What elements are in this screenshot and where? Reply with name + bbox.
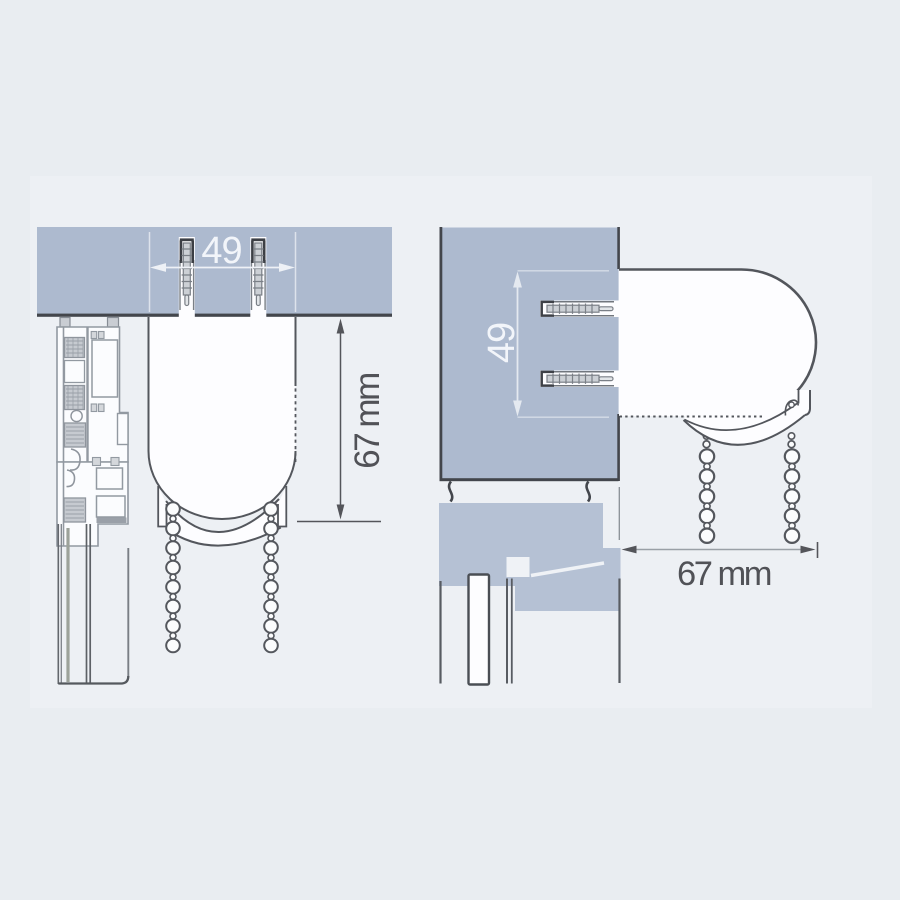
- svg-text:67 mm: 67 mm: [677, 555, 771, 593]
- svg-text:49: 49: [201, 230, 241, 272]
- svg-text:67 mm: 67 mm: [348, 374, 387, 469]
- svg-text:49: 49: [481, 323, 523, 363]
